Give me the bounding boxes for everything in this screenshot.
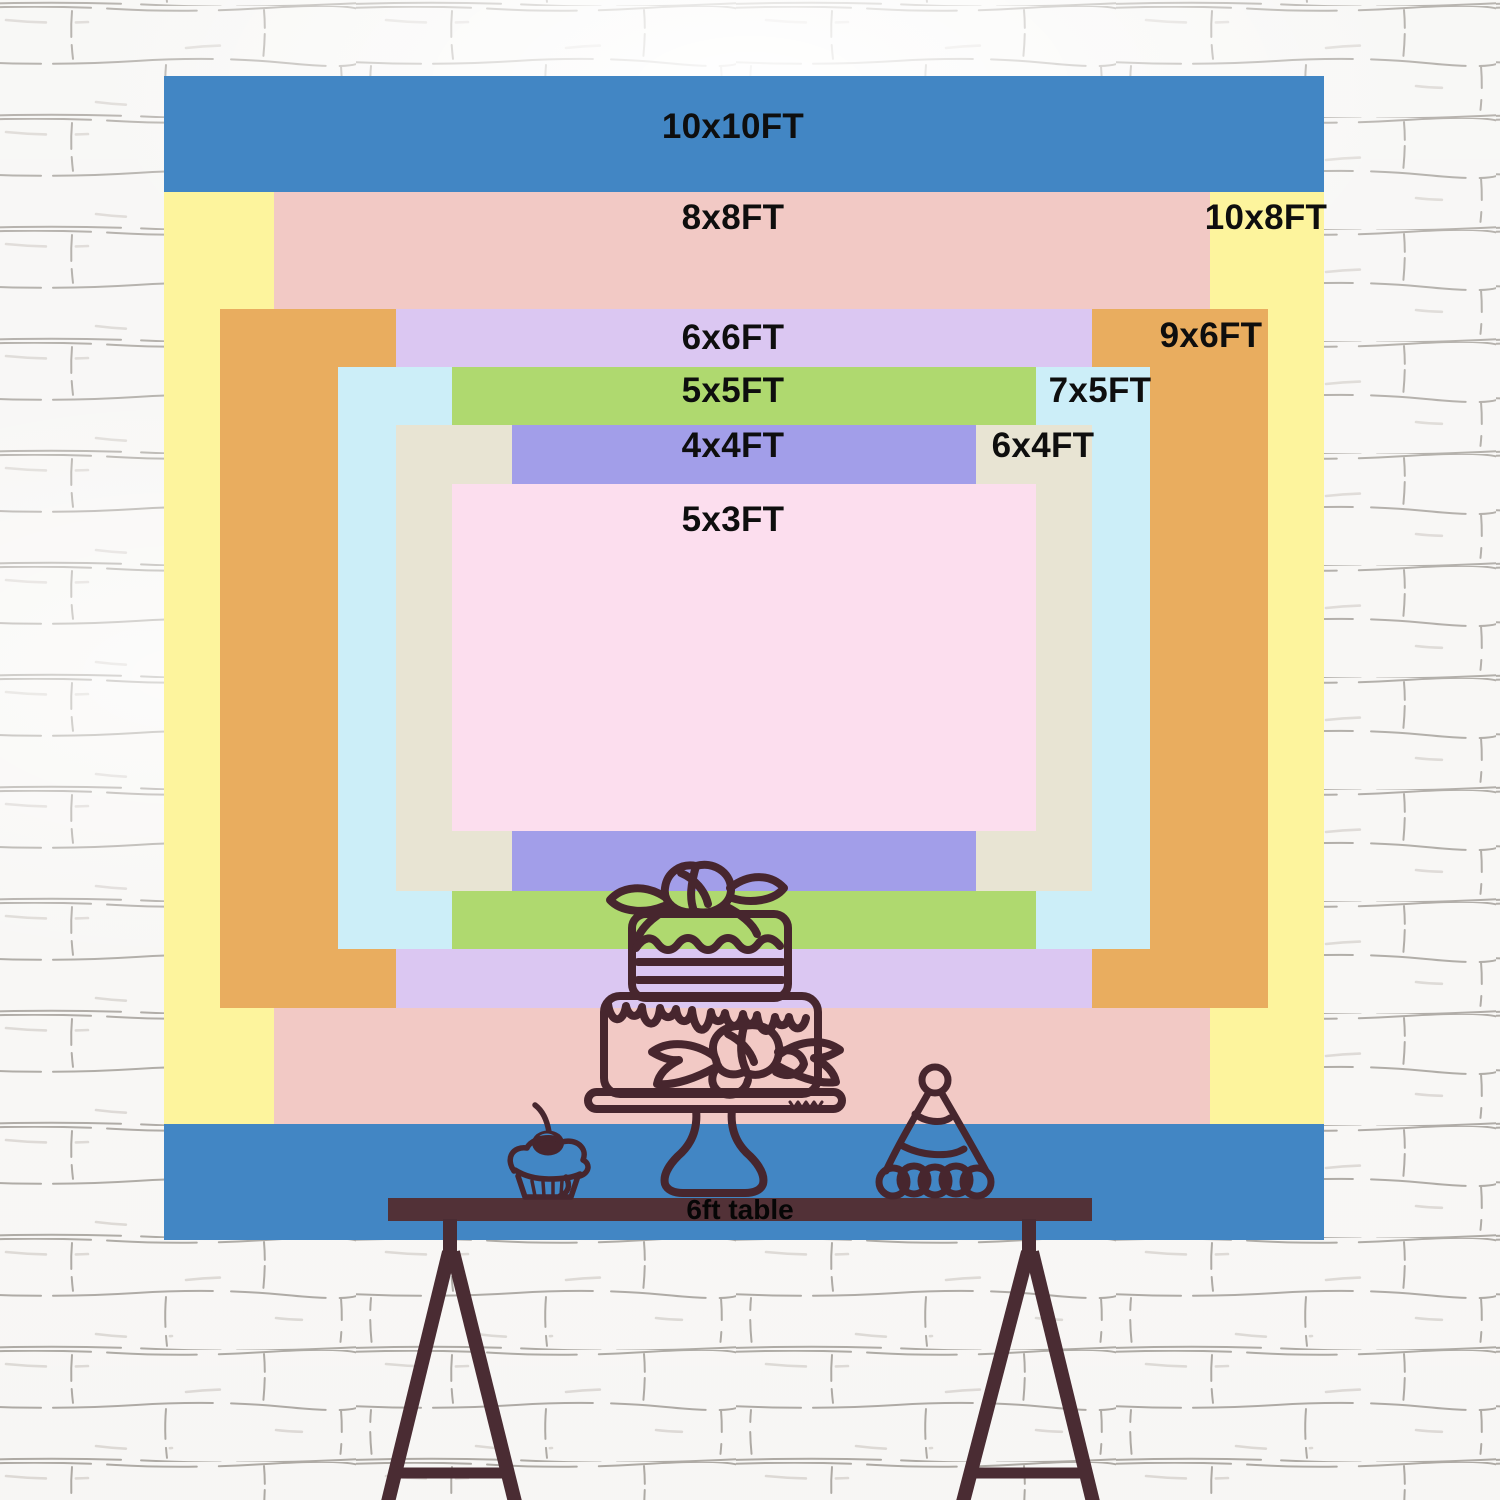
size-label-6x6: 6x6FT [682,318,785,358]
size-label-10x8: 10x8FT [1205,198,1327,238]
table-size-label: 6ft table [686,1194,793,1226]
size-label-7x5: 7x5FT [1049,371,1152,411]
size-label-5x5: 5x5FT [682,371,785,411]
size-label-5x3: 5x3FT [682,500,785,540]
size-label-6x4: 6x4FT [992,426,1095,466]
size-label-10x10: 10x10FT [662,107,804,147]
backdrop-size-chart: 10x10FT10x8FT8x8FT9x6FT6x6FT7x5FT5x5FT6x… [0,0,1500,1500]
size-label-9x6: 9x6FT [1160,316,1263,356]
size-label-8x8: 8x8FT [682,198,785,238]
size-label-4x4: 4x4FT [682,426,785,466]
